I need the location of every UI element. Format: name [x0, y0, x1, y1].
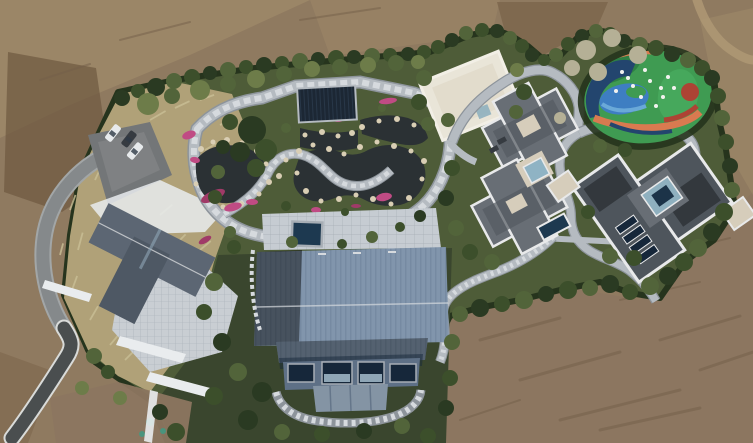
pond-rock [421, 158, 427, 164]
tree [314, 426, 330, 442]
tree [648, 40, 664, 56]
tree [395, 222, 405, 232]
tree [137, 93, 159, 115]
tree [442, 370, 458, 386]
play-equipment-dot [620, 70, 624, 74]
tree [664, 46, 680, 62]
tree [510, 63, 524, 77]
tree [538, 286, 554, 302]
tree [220, 62, 236, 78]
lower-wall-mullion-2 [350, 385, 351, 411]
pond-rock [276, 173, 282, 179]
tree [378, 104, 386, 112]
blue-building-louver-west [288, 364, 314, 382]
pond-rock [370, 196, 376, 202]
main-blue-building [252, 247, 449, 423]
pond-rock [349, 130, 355, 136]
pond-rock [284, 158, 289, 163]
tree [101, 365, 115, 379]
pond-rock [412, 123, 417, 128]
tree [114, 90, 130, 106]
paint-mark [160, 428, 166, 434]
paint-mark [139, 431, 145, 437]
tree [276, 66, 292, 82]
tree [211, 165, 225, 179]
lower-wall-mullion-1 [330, 386, 331, 411]
pond-rock [257, 192, 262, 197]
tree [411, 94, 427, 110]
tree [484, 254, 500, 270]
tree [274, 424, 290, 440]
tree [538, 54, 550, 66]
blue-building-window-2-part [360, 374, 382, 382]
tree [356, 423, 372, 439]
tree [167, 423, 185, 441]
blue-roof-west-facet [254, 250, 302, 346]
tree [559, 281, 577, 299]
tree [589, 24, 603, 38]
tree [203, 66, 217, 80]
tree [675, 253, 693, 271]
tree [459, 26, 473, 40]
tree [152, 404, 168, 420]
tree [509, 105, 523, 119]
tree [515, 291, 533, 309]
tree [475, 23, 489, 37]
pond-rock [303, 133, 308, 138]
pond-rock [326, 146, 332, 152]
tree [438, 400, 454, 416]
tree [196, 304, 212, 320]
tree [337, 239, 347, 249]
play-equipment-dot [639, 95, 643, 99]
pond-rock [354, 193, 359, 198]
pond-rock [377, 119, 382, 124]
pond-rock [198, 146, 204, 152]
tree [166, 73, 182, 89]
tree [703, 223, 721, 241]
tree [448, 220, 464, 236]
tree [589, 63, 607, 81]
tree [205, 273, 223, 291]
tree [255, 139, 277, 161]
tree [714, 110, 730, 126]
tree [659, 267, 677, 285]
tree [629, 46, 647, 64]
tree [715, 203, 733, 221]
tree [503, 31, 517, 45]
tree [680, 52, 696, 68]
play-red-blob [681, 83, 699, 101]
tree [576, 40, 596, 60]
tree [710, 88, 726, 104]
pond-rock [406, 195, 412, 201]
tree [471, 299, 489, 317]
tree [190, 80, 210, 100]
tree [332, 59, 348, 75]
tree [281, 123, 291, 133]
tree [113, 391, 127, 405]
blue-building-window-1-part [324, 374, 350, 382]
play-equipment-dot [648, 79, 652, 83]
tree [281, 201, 291, 211]
tree [722, 158, 738, 174]
blue-building-window-1 [322, 362, 352, 384]
tree [582, 280, 598, 296]
pond-rock [303, 188, 309, 194]
tree [347, 50, 361, 64]
tree [704, 70, 720, 86]
pond-rock [296, 148, 302, 154]
tree [213, 333, 231, 351]
tree [252, 382, 272, 402]
tree [230, 142, 250, 162]
flower-bed [351, 204, 361, 208]
tree [421, 117, 435, 131]
tree [441, 113, 455, 127]
tree [247, 70, 265, 88]
pond-rock [311, 143, 316, 148]
pond-rock [319, 199, 324, 204]
tree [205, 387, 223, 405]
tree [238, 410, 258, 430]
tree [86, 348, 102, 364]
tree [603, 29, 621, 47]
pond-rock [319, 129, 325, 135]
play-equipment-dot [654, 104, 658, 108]
tree [224, 226, 236, 238]
tree [689, 239, 707, 257]
play-equipment-dot [659, 86, 663, 90]
tree [494, 296, 510, 312]
pond-rock [266, 179, 272, 185]
tree [618, 143, 632, 157]
blue-building-window-2 [358, 362, 384, 384]
tree [516, 84, 532, 100]
pond-rock [194, 182, 199, 187]
tree [561, 37, 575, 51]
tree [431, 40, 445, 54]
tree [229, 363, 247, 381]
pond-rock [357, 144, 363, 150]
tree [438, 190, 454, 206]
tree [388, 55, 404, 71]
tree [444, 160, 460, 176]
pond-rock [394, 116, 400, 122]
tree [304, 61, 320, 77]
tree [286, 236, 298, 248]
tree [444, 334, 460, 350]
tree [626, 250, 642, 266]
tree [414, 210, 426, 222]
flower-bed [246, 199, 258, 205]
tree [641, 277, 659, 295]
tree [411, 55, 425, 69]
play-equipment-dot [631, 84, 635, 88]
tree [341, 208, 349, 216]
pond-rock [359, 124, 365, 130]
pond-rock [375, 140, 380, 145]
tree [227, 240, 241, 254]
estate-aerial-photo [0, 0, 753, 443]
tree [216, 140, 230, 154]
tree [360, 57, 376, 73]
tree [416, 70, 432, 86]
pond-rock [336, 196, 342, 202]
pond-rock [409, 149, 414, 154]
tree [490, 24, 504, 38]
tree [238, 116, 266, 144]
play-equipment-dot [626, 76, 630, 80]
pond-rock [211, 140, 216, 145]
pond-rock [389, 202, 394, 207]
tree [601, 275, 619, 293]
tree [581, 205, 595, 219]
tree [394, 418, 410, 434]
tree [602, 248, 618, 264]
tree [554, 112, 566, 124]
tree [525, 48, 539, 62]
garden-pavilion [297, 86, 357, 123]
play-equipment-dot [666, 75, 670, 79]
tree [247, 159, 265, 177]
tree [164, 88, 180, 104]
tree [222, 114, 238, 130]
tree [75, 381, 89, 395]
pond-rock [420, 177, 425, 182]
play-equipment-dot [643, 68, 647, 72]
tree [622, 284, 638, 300]
tree [208, 190, 222, 204]
pond-rock [342, 152, 347, 157]
play-equipment-dot [672, 86, 676, 90]
tree [366, 231, 378, 243]
play-equipment-dot [661, 95, 665, 99]
play-green-island [626, 86, 646, 98]
tree [445, 33, 459, 47]
tree [718, 134, 734, 150]
aerial-photo-stage [0, 0, 753, 443]
tree [549, 48, 563, 62]
tree [724, 182, 740, 198]
tree [220, 76, 236, 92]
tree [564, 60, 580, 76]
tree [462, 244, 478, 260]
pond-rock [295, 171, 300, 176]
blue-building-louver-east [390, 364, 416, 382]
tree [593, 139, 607, 153]
pond-rock [391, 143, 397, 149]
tree [452, 306, 468, 322]
pavilion-roof [297, 86, 357, 123]
play-equipment-dot [614, 89, 618, 93]
lower-wall-mullion-3 [370, 385, 371, 410]
pond-rock [336, 134, 341, 139]
